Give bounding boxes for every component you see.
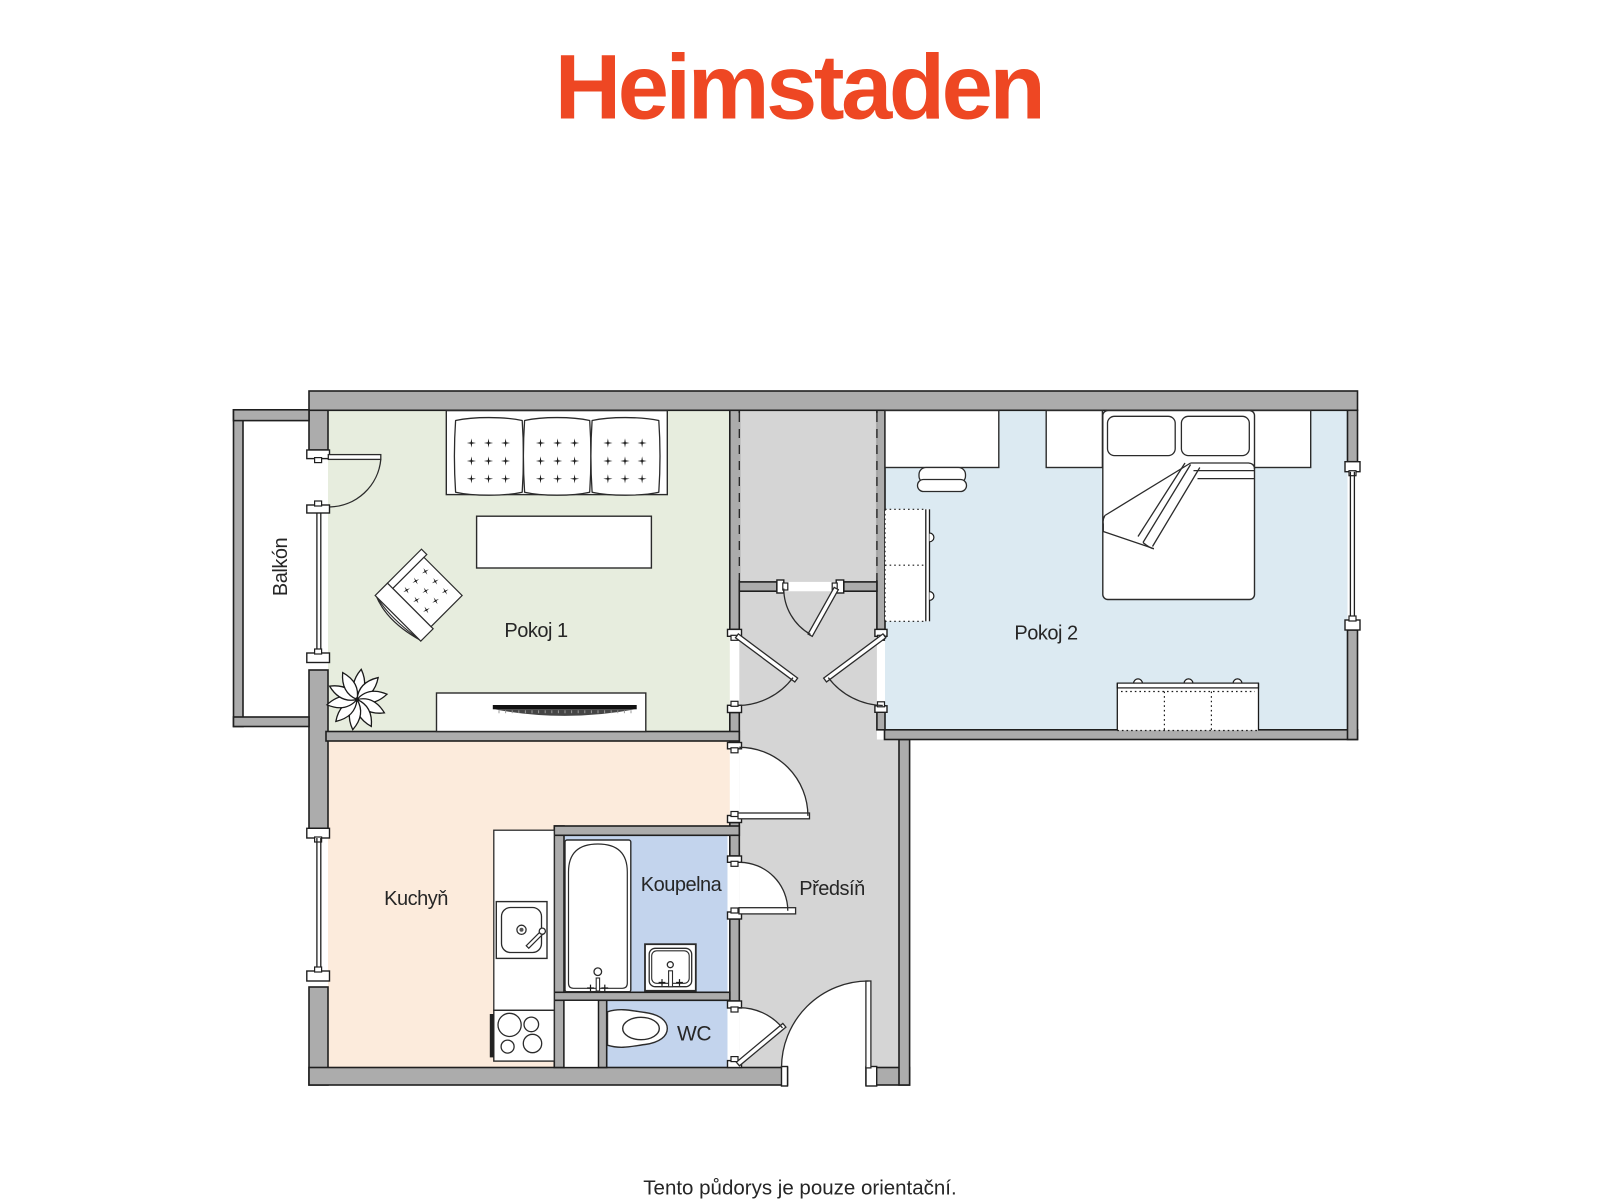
svg-text:Koupelna: Koupelna	[641, 874, 723, 896]
svg-text:Pokoj 1: Pokoj 1	[504, 620, 568, 642]
svg-text:Tento půdorys je pouze orienta: Tento půdorys je pouze orientační.	[643, 1177, 956, 1200]
svg-text:Kuchyň: Kuchyň	[384, 888, 448, 910]
svg-text:Pokoj 2: Pokoj 2	[1014, 623, 1078, 645]
svg-text:Předsíň: Předsíň	[799, 878, 864, 900]
svg-text:WC: WC	[677, 1023, 711, 1046]
svg-text:Balkón: Balkón	[270, 538, 292, 596]
svg-text:Heimstaden: Heimstaden	[555, 37, 1043, 139]
